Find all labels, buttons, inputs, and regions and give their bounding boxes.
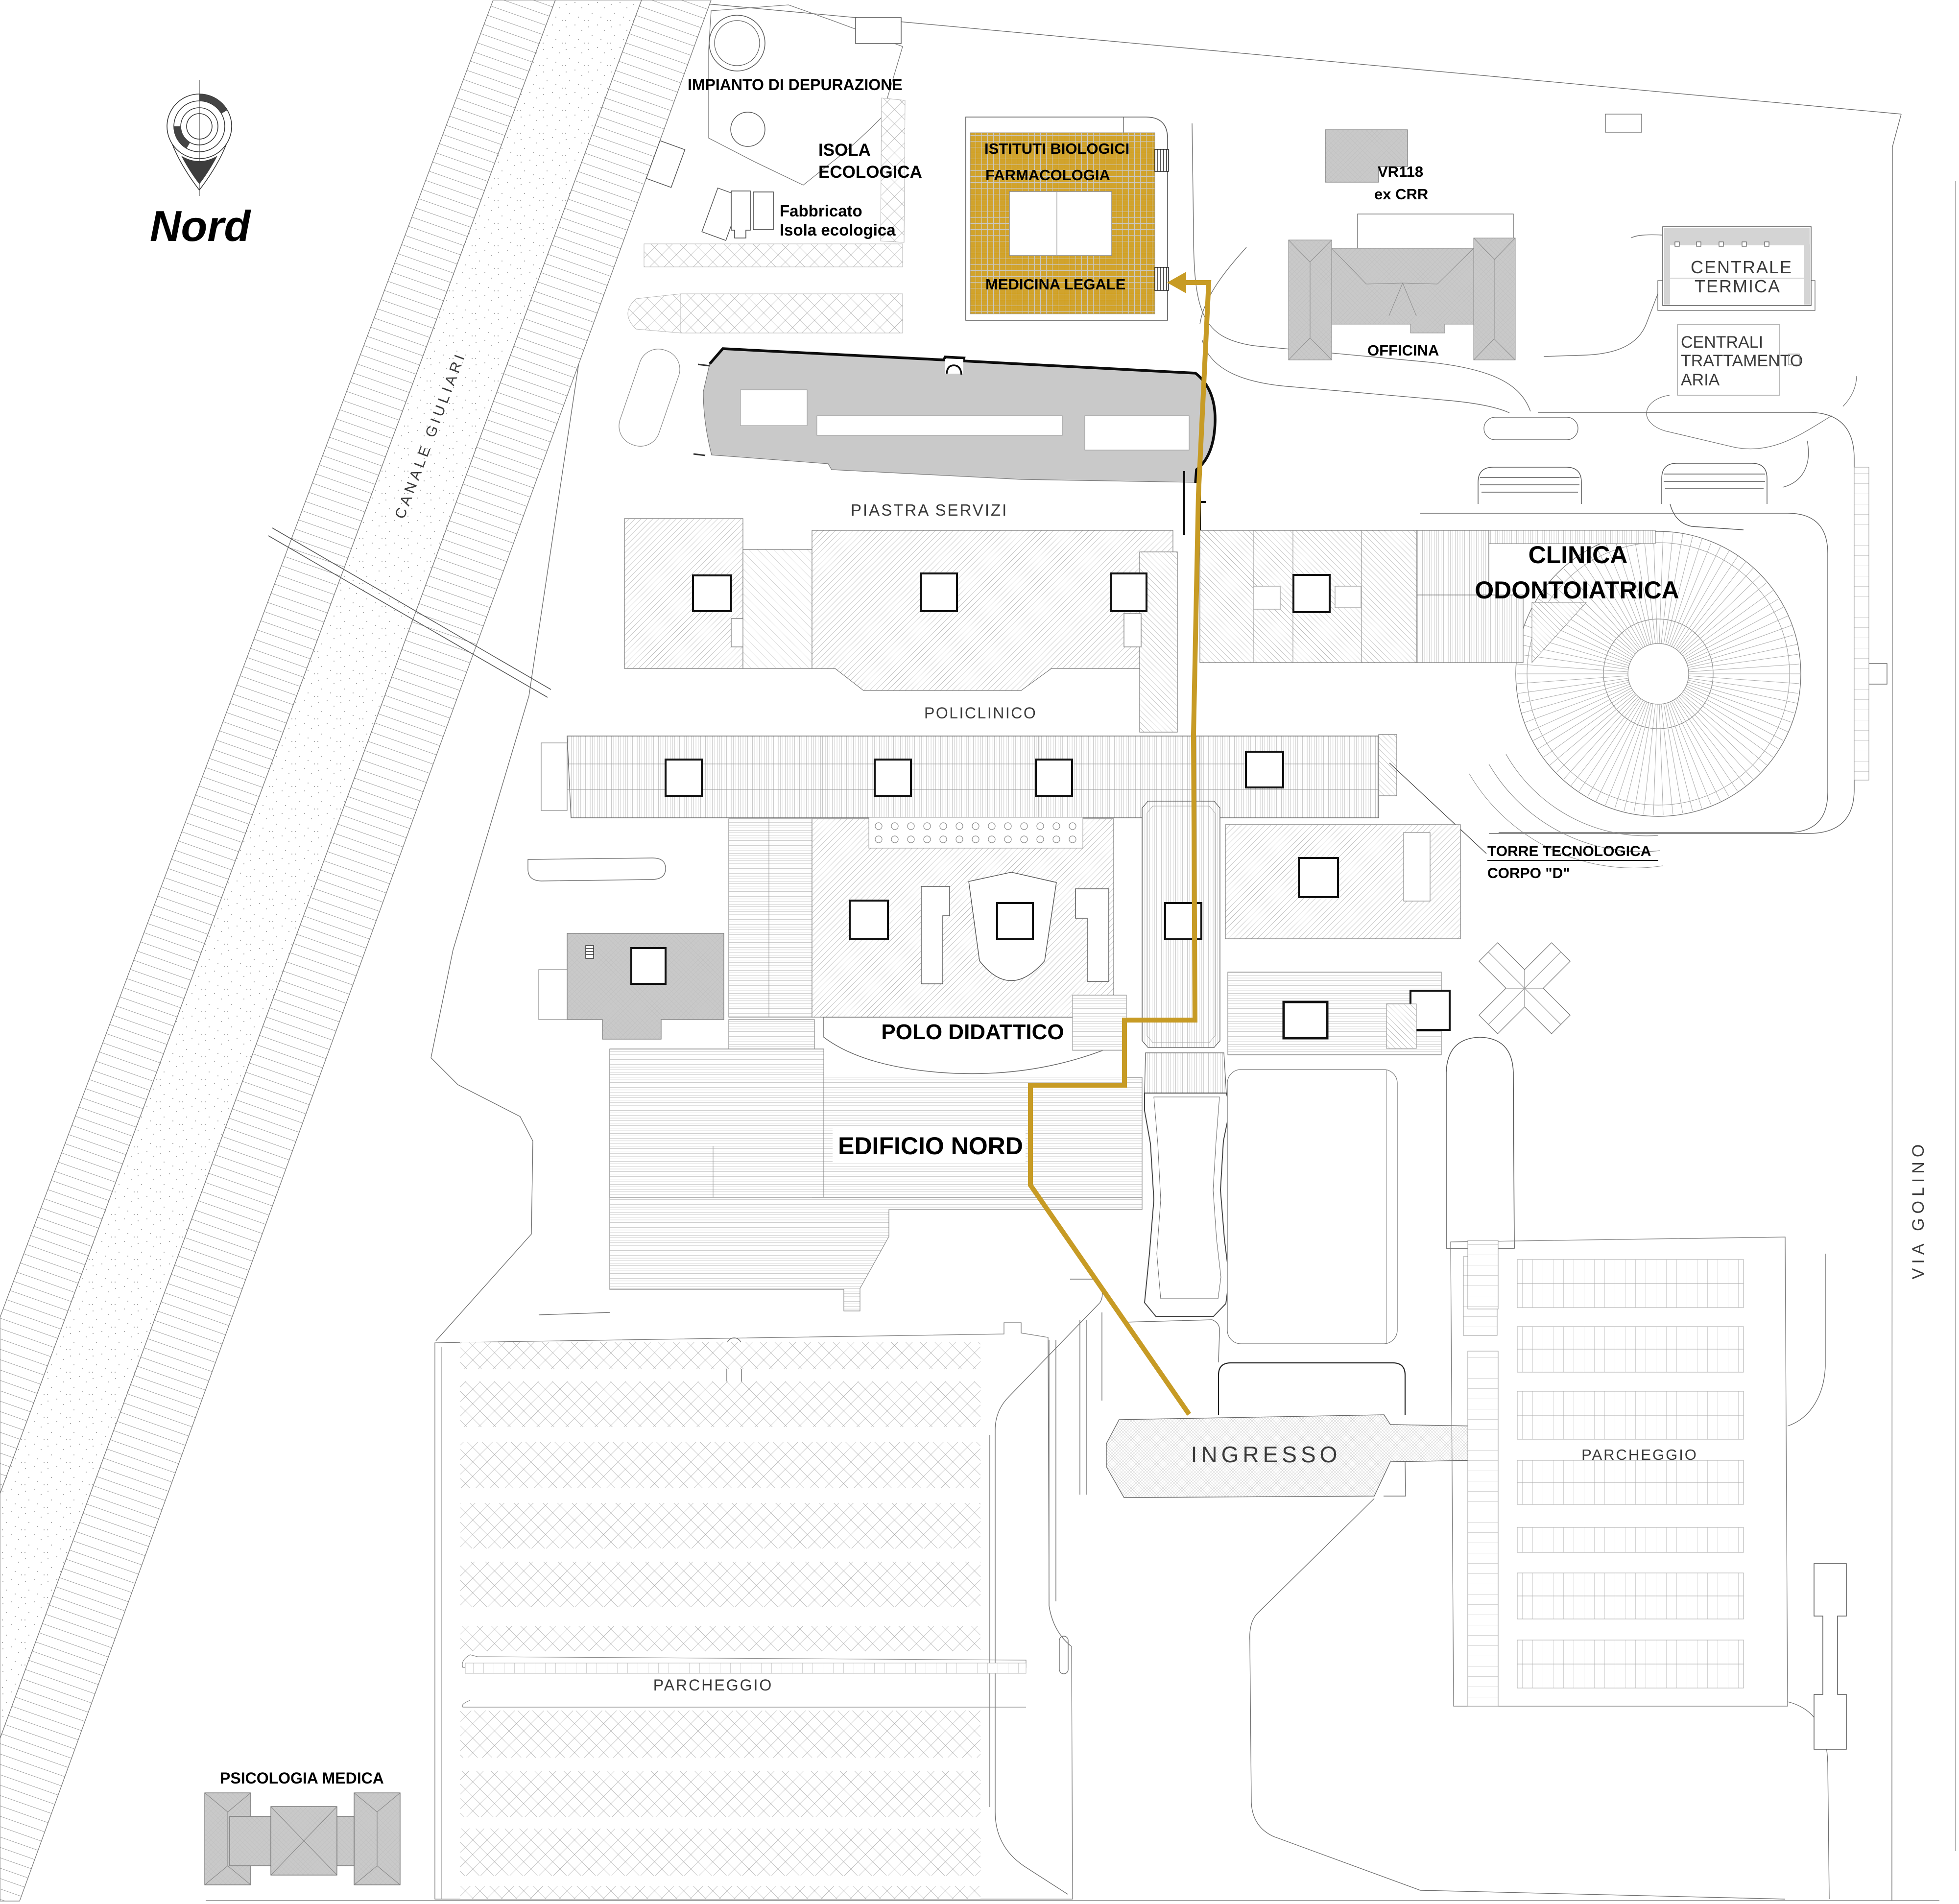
svg-text:CENTRALE: CENTRALE	[1691, 257, 1792, 277]
svg-text:PIASTRA SERVIZI: PIASTRA SERVIZI	[851, 501, 1008, 519]
svg-text:Nord: Nord	[150, 202, 252, 250]
svg-text:TORRE TECNOLOGICA: TORRE TECNOLOGICA	[1487, 843, 1651, 859]
svg-text:Fabbricato: Fabbricato	[780, 202, 862, 220]
svg-text:ISOLA: ISOLA	[818, 141, 871, 160]
svg-text:TRATTAMENTO: TRATTAMENTO	[1681, 352, 1803, 370]
svg-text:TERMICA: TERMICA	[1695, 276, 1781, 296]
svg-text:ex CRR: ex CRR	[1374, 186, 1428, 203]
svg-text:PARCHEGGIO: PARCHEGGIO	[1581, 1446, 1698, 1463]
svg-text:ECOLOGICA: ECOLOGICA	[818, 163, 922, 182]
svg-text:VR118: VR118	[1378, 163, 1423, 180]
svg-text:ODONTOIATRICA: ODONTOIATRICA	[1475, 576, 1679, 604]
svg-text:CLINICA: CLINICA	[1529, 541, 1628, 569]
svg-text:CENTRALI: CENTRALI	[1681, 333, 1763, 352]
svg-text:MEDICINA LEGALE: MEDICINA LEGALE	[985, 276, 1125, 293]
svg-text:PSICOLOGIA MEDICA: PSICOLOGIA MEDICA	[220, 1769, 384, 1787]
svg-text:POLICLINICO: POLICLINICO	[924, 704, 1037, 722]
svg-text:PARCHEGGIO: PARCHEGGIO	[653, 1676, 773, 1694]
svg-text:ISTITUTI BIOLOGICI: ISTITUTI BIOLOGICI	[984, 140, 1129, 157]
svg-text:VIA GOLINO: VIA GOLINO	[1909, 1140, 1928, 1280]
svg-text:EDIFICIO NORD: EDIFICIO NORD	[838, 1132, 1023, 1160]
svg-text:CORPO "D": CORPO "D"	[1487, 865, 1570, 881]
svg-text:POLO DIDATTICO: POLO DIDATTICO	[881, 1020, 1064, 1044]
svg-text:IMPIANTO DI DEPURAZIONE: IMPIANTO DI DEPURAZIONE	[688, 76, 903, 94]
svg-text:Isola ecologica: Isola ecologica	[780, 221, 896, 239]
svg-text:FARMACOLOGIA: FARMACOLOGIA	[985, 167, 1110, 184]
svg-text:INGRESSO: INGRESSO	[1191, 1442, 1341, 1467]
svg-text:ARIA: ARIA	[1681, 371, 1720, 389]
svg-text:OFFICINA: OFFICINA	[1367, 342, 1439, 359]
